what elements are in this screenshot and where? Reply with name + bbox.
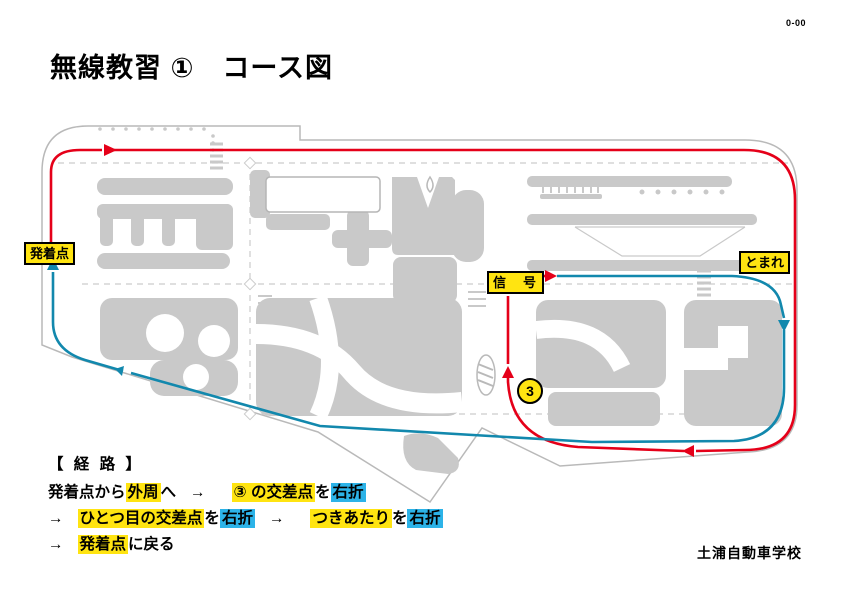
route-line-2: →ひとつ目の交差点を右折→つきあたりを右折: [48, 506, 443, 532]
route-text-plain: 発着点から: [48, 484, 126, 501]
route-text-highlight-yellow: ③ の交差点: [232, 483, 315, 502]
building-outline: [266, 177, 380, 212]
route-text-plain: に戻る: [128, 536, 175, 553]
route-heading: 【 経 路 】: [48, 452, 443, 478]
pillar-hatched: [477, 355, 495, 395]
route-text-highlight-yellow: 外周: [126, 483, 161, 502]
route-text-highlight-cyan: 右折: [407, 509, 442, 528]
route-text-highlight-yellow: 発着点: [78, 535, 129, 554]
route-text-plain: を: [204, 510, 220, 527]
teardrop-marker: [427, 177, 433, 192]
route-text-plain: を: [315, 484, 331, 501]
route-arrow: →: [48, 536, 64, 553]
route-text-highlight-cyan: 右折: [220, 509, 255, 528]
school-name: 土浦自動車学校: [697, 543, 802, 563]
route-line-1: 発着点から外周へ→③ の交差点を右折: [48, 480, 443, 506]
route-description: 【 経 路 】 発着点から外周へ→③ の交差点を右折 →ひとつ目の交差点を右折→…: [48, 452, 443, 558]
route-arrow: →: [269, 510, 285, 527]
route-arrow: →: [48, 510, 64, 527]
route-text-highlight-yellow: つきあたり: [310, 509, 392, 528]
route-text-highlight-yellow: ひとつ目の交差点: [78, 509, 205, 528]
route-text-highlight-cyan: 右折: [331, 483, 366, 502]
label-junction-3: 3: [517, 378, 543, 404]
route-text-plain: を: [392, 510, 408, 527]
label-stop: とまれ: [739, 251, 790, 274]
label-start-point: 発着点: [24, 242, 75, 265]
route-text-plain: へ: [161, 484, 177, 501]
route-arrow: →: [190, 484, 206, 501]
label-signal: 信 号: [487, 271, 544, 294]
route-line-3: →発着点に戻る: [48, 532, 443, 558]
